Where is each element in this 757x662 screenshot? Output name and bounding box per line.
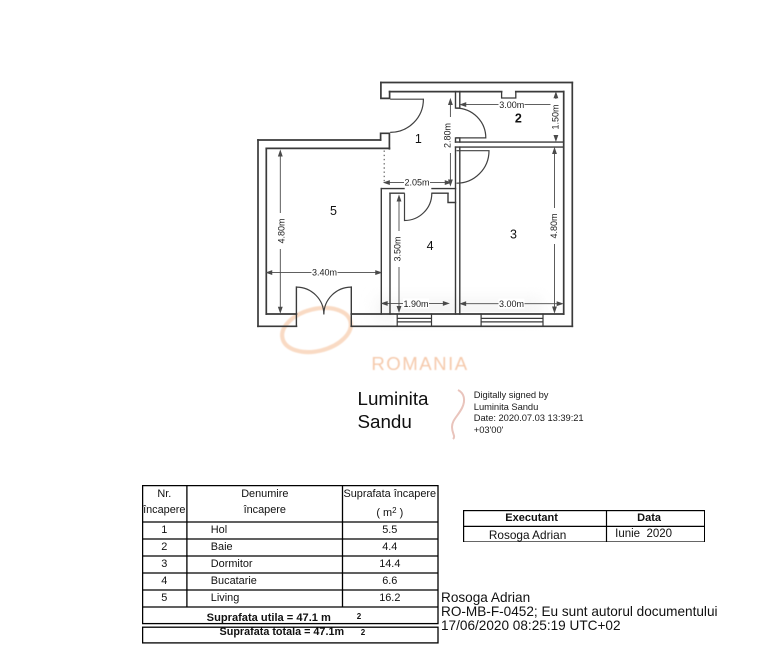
svg-text:3.00m: 3.00m — [499, 299, 524, 309]
svg-text:4: 4 — [427, 239, 434, 253]
svg-text:2.80m: 2.80m — [443, 123, 453, 148]
svg-text:2.05m: 2.05m — [404, 178, 429, 188]
svg-text:1.90m: 1.90m — [403, 299, 428, 309]
svg-text:3.50m: 3.50m — [392, 236, 402, 261]
svg-text:3.40m: 3.40m — [312, 268, 337, 278]
svg-text:5: 5 — [330, 204, 337, 218]
svg-text:1.50m: 1.50m — [550, 104, 560, 129]
svg-text:4.80m: 4.80m — [276, 218, 286, 243]
svg-text:1: 1 — [415, 132, 422, 146]
svg-text:3: 3 — [510, 228, 517, 242]
svg-text:ROMANIA: ROMANIA — [371, 353, 468, 374]
svg-text:2: 2 — [515, 112, 522, 126]
svg-text:3.00m: 3.00m — [499, 100, 524, 110]
svg-text:4.80m: 4.80m — [549, 213, 559, 238]
